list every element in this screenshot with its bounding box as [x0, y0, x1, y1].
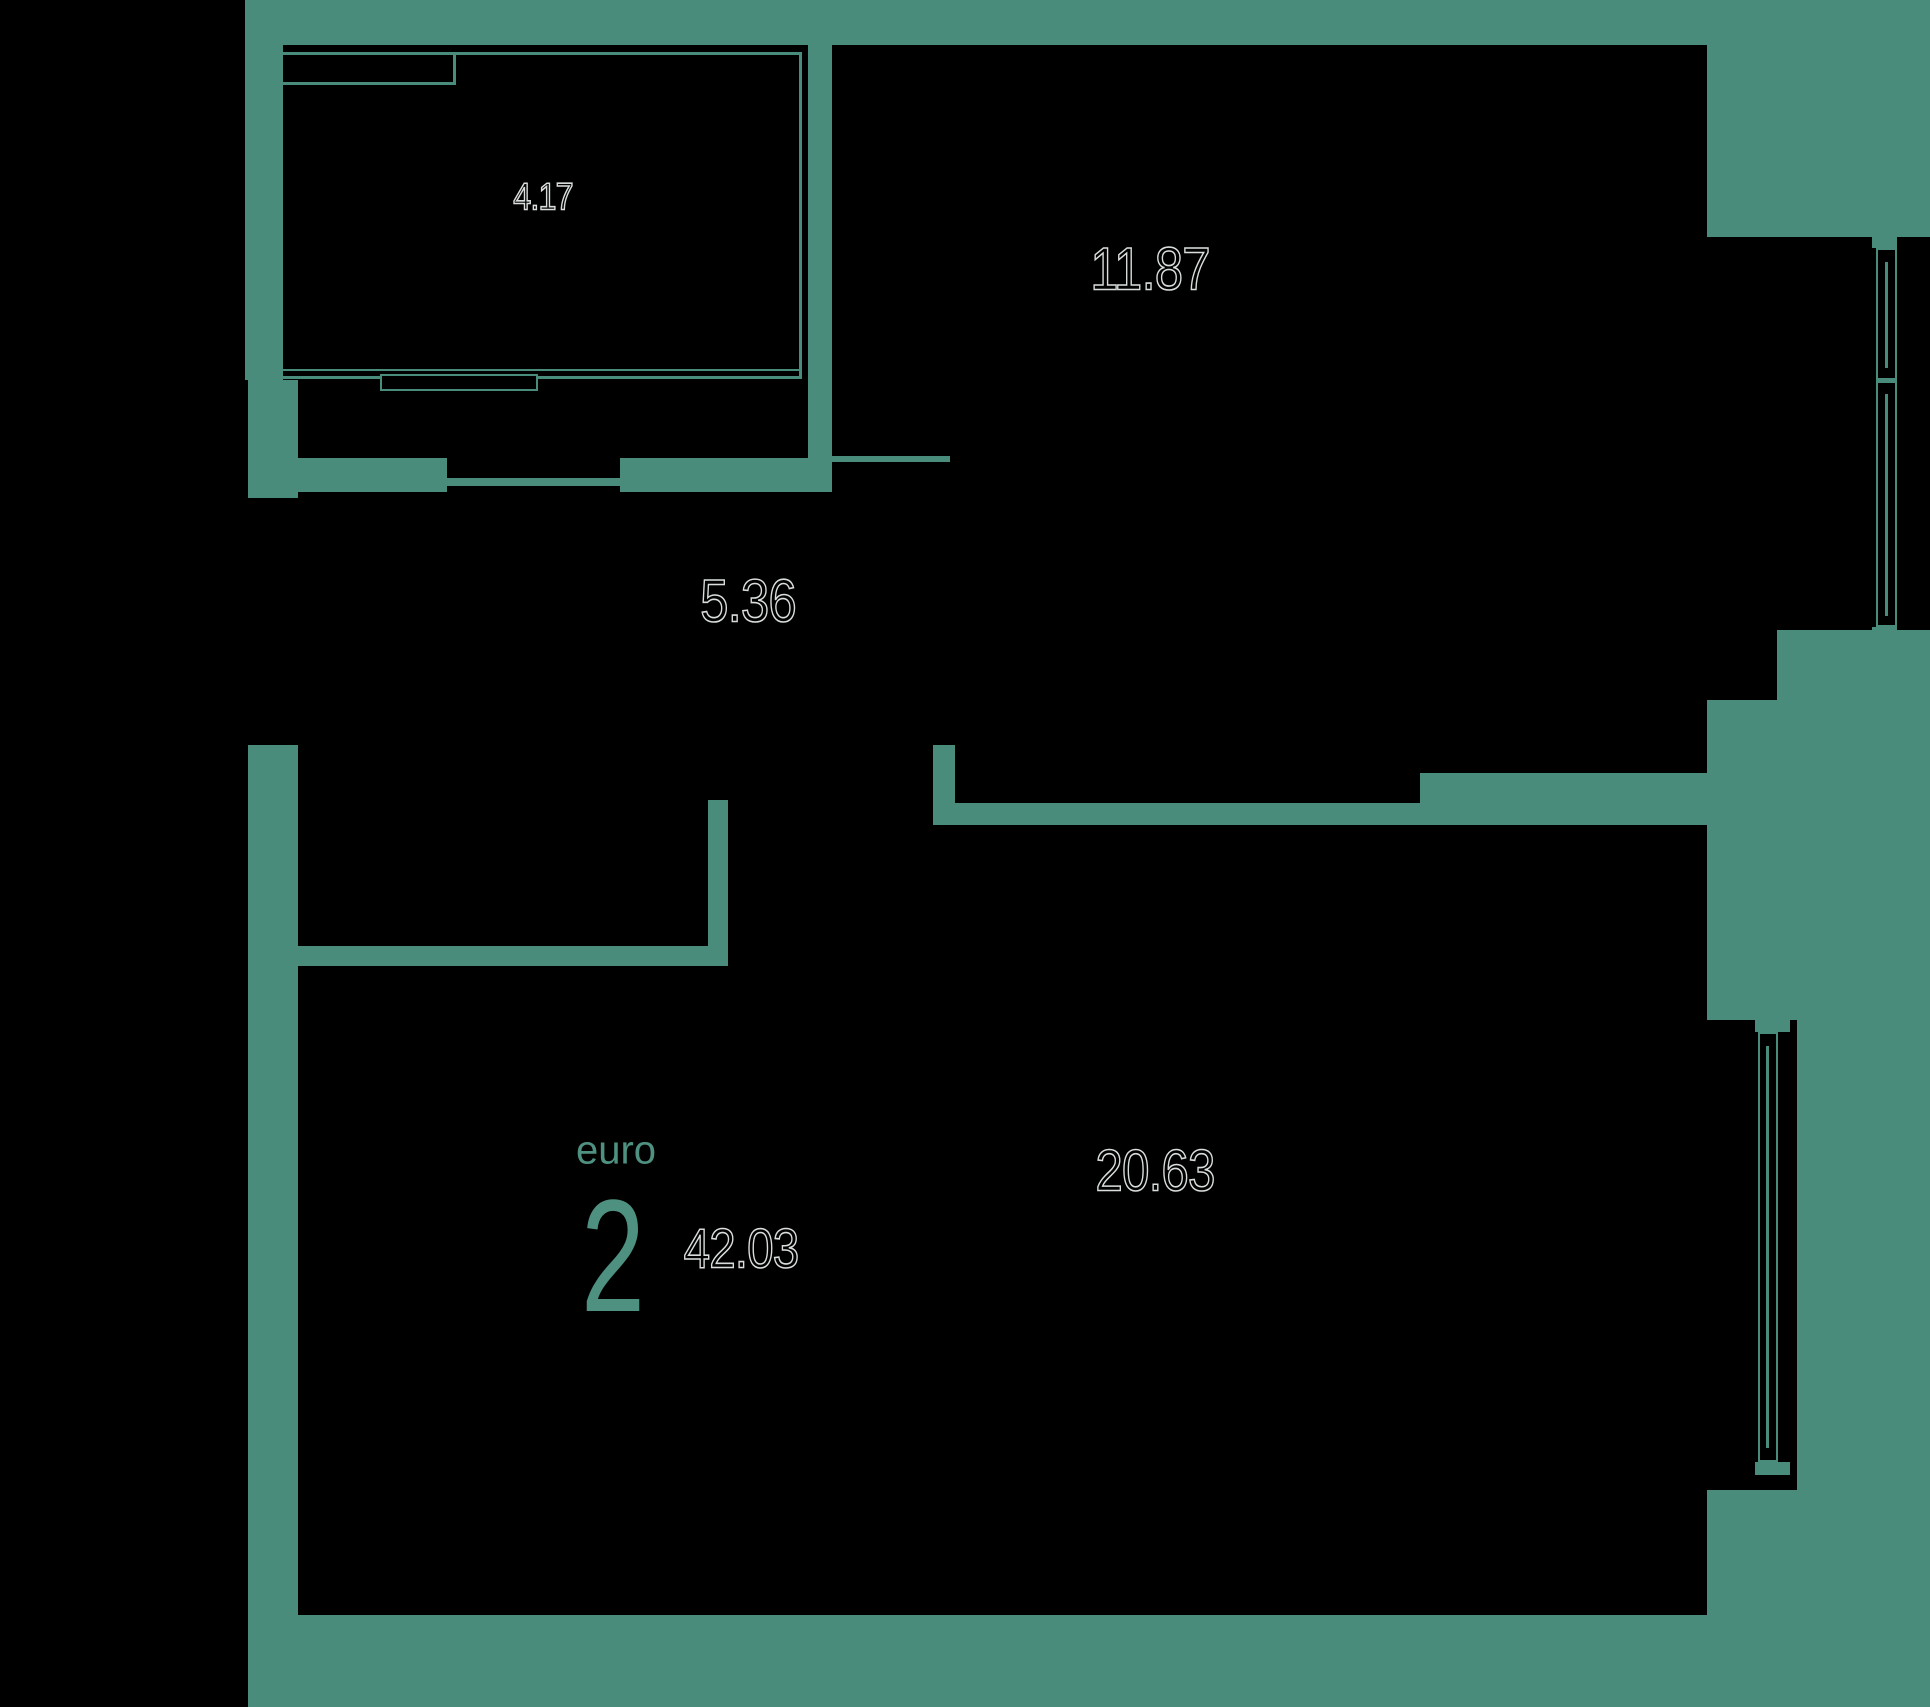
balcony-outline-top	[252, 52, 802, 55]
bedroom-area-label: 11.87	[1090, 235, 1210, 304]
unit-total-area-label: 42.03	[684, 1216, 799, 1281]
balcony-notch-line-v	[453, 52, 456, 85]
living-window-tick-bottom	[1755, 1462, 1790, 1475]
balcony-outline-right	[799, 52, 802, 378]
bedroom-window-tick-top	[1872, 237, 1897, 248]
wall-hallway-top-right	[620, 458, 832, 492]
wall-hallway-bottom	[248, 946, 728, 966]
wall-right-bottom-block	[1707, 1490, 1930, 1707]
hallway-area-label: 5.36	[700, 567, 796, 636]
bedroom-window-divider	[1876, 378, 1897, 383]
wall-top-band	[245, 0, 1930, 45]
window-recess-notch	[1707, 630, 1777, 700]
balcony-outline-left	[252, 52, 255, 378]
wall-hallway-top-left	[298, 458, 447, 492]
unit-type-number: 2	[581, 1164, 645, 1348]
wall-right-low-block	[1797, 1020, 1930, 1490]
balcony-door-step	[380, 374, 538, 391]
bedroom-window-glass-upper	[1885, 262, 1888, 368]
living-window-glass	[1766, 1046, 1769, 1448]
wall-bottom-band	[248, 1615, 1930, 1707]
wall-hallway-right	[708, 800, 728, 966]
wall-bedroom-left	[808, 45, 832, 492]
living-window-tick-top	[1755, 1020, 1790, 1032]
bedroom-window-glass-lower	[1885, 394, 1888, 616]
balcony-door-threshold	[447, 478, 620, 486]
wall-left-top-band	[245, 0, 283, 380]
wall-stub-bedroom-door	[933, 745, 955, 825]
bedroom-window-tick-bottom	[1872, 627, 1897, 635]
balcony-notch-line-h	[252, 82, 455, 85]
balcony-area-label: 4.17	[513, 177, 572, 220]
wall-left-lower	[248, 745, 298, 1707]
living-area-label: 20.63	[1095, 1138, 1214, 1205]
balcony-outline-bottom-inner	[252, 369, 802, 371]
floor-plan: 4.17 11.87 5.36 20.63 euro 2 42.03	[0, 0, 1930, 1707]
wall-bedroom-bottom-thick	[1420, 773, 1707, 825]
wall-left-upper	[248, 380, 298, 498]
wall-bedroom-bottom-thin	[955, 803, 1420, 825]
bedroom-door-threshold	[832, 456, 950, 462]
wall-top-right-block	[1707, 0, 1930, 237]
